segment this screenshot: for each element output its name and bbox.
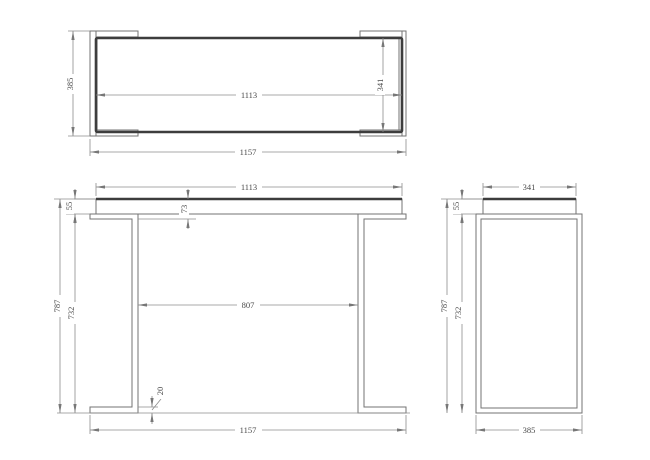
dim-top-overall-depth: 385 [65, 31, 90, 136]
dim-side-top-depth: 341 [483, 182, 576, 196]
dim-label-807-front: 807 [242, 300, 255, 310]
dim-label-20-front: 20 [155, 387, 165, 396]
top-view-tabletop-outline [96, 38, 402, 132]
top-view: 385 1113 341 1157 [65, 31, 406, 157]
side-tabletop-slab [483, 199, 576, 214]
right-front-tab [360, 31, 402, 37]
dim-label-341-top: 341 [375, 79, 385, 92]
side-view: 341 55 787 732 [439, 182, 582, 435]
dim-top-tabletop-depth: 341 [375, 38, 385, 132]
dim-label-385-side: 385 [523, 425, 536, 435]
dim-side-overall-depth: 385 [476, 415, 582, 435]
dim-label-1157-top: 1157 [240, 147, 257, 157]
dim-label-55-side: 55 [451, 202, 461, 211]
dim-label-732-front: 732 [66, 307, 76, 320]
dim-label-1113-top: 1113 [241, 90, 257, 100]
dim-label-787-front: 787 [52, 300, 62, 313]
dim-front-leg-height: 732 [66, 214, 76, 413]
dim-label-385-top: 385 [65, 78, 75, 91]
drawing-canvas: 385 1113 341 1157 [0, 0, 650, 460]
dim-label-341-side: 341 [523, 182, 536, 192]
left-front-tab [96, 31, 138, 37]
dim-front-foot-thickness: 20 [138, 383, 165, 424]
front-right-leg [358, 214, 406, 413]
dim-front-tabletop-width: 1113 [96, 182, 402, 196]
dim-label-787-side: 787 [439, 300, 449, 313]
dim-top-overall-width: 1157 [90, 139, 406, 157]
front-tabletop-slab [96, 199, 402, 214]
dim-label-1113-front: 1113 [241, 182, 257, 192]
side-leg-frame-inner [481, 219, 577, 408]
dim-label-732-side: 732 [453, 307, 463, 320]
dim-top-tabletop-width: 1113 [96, 90, 402, 100]
front-left-leg [90, 214, 138, 413]
dim-label-1157-front: 1157 [240, 425, 257, 435]
dim-side-leg-height: 732 [453, 214, 463, 413]
dim-label-73-front: 73 [179, 205, 189, 214]
dim-front-clear-span: 807 [138, 300, 358, 310]
technical-drawing: 385 1113 341 1157 [0, 0, 650, 460]
dim-front-overall-width: 1157 [90, 415, 406, 435]
front-view: 1113 55 73 [52, 182, 410, 435]
dim-label-55-front: 55 [64, 202, 74, 211]
